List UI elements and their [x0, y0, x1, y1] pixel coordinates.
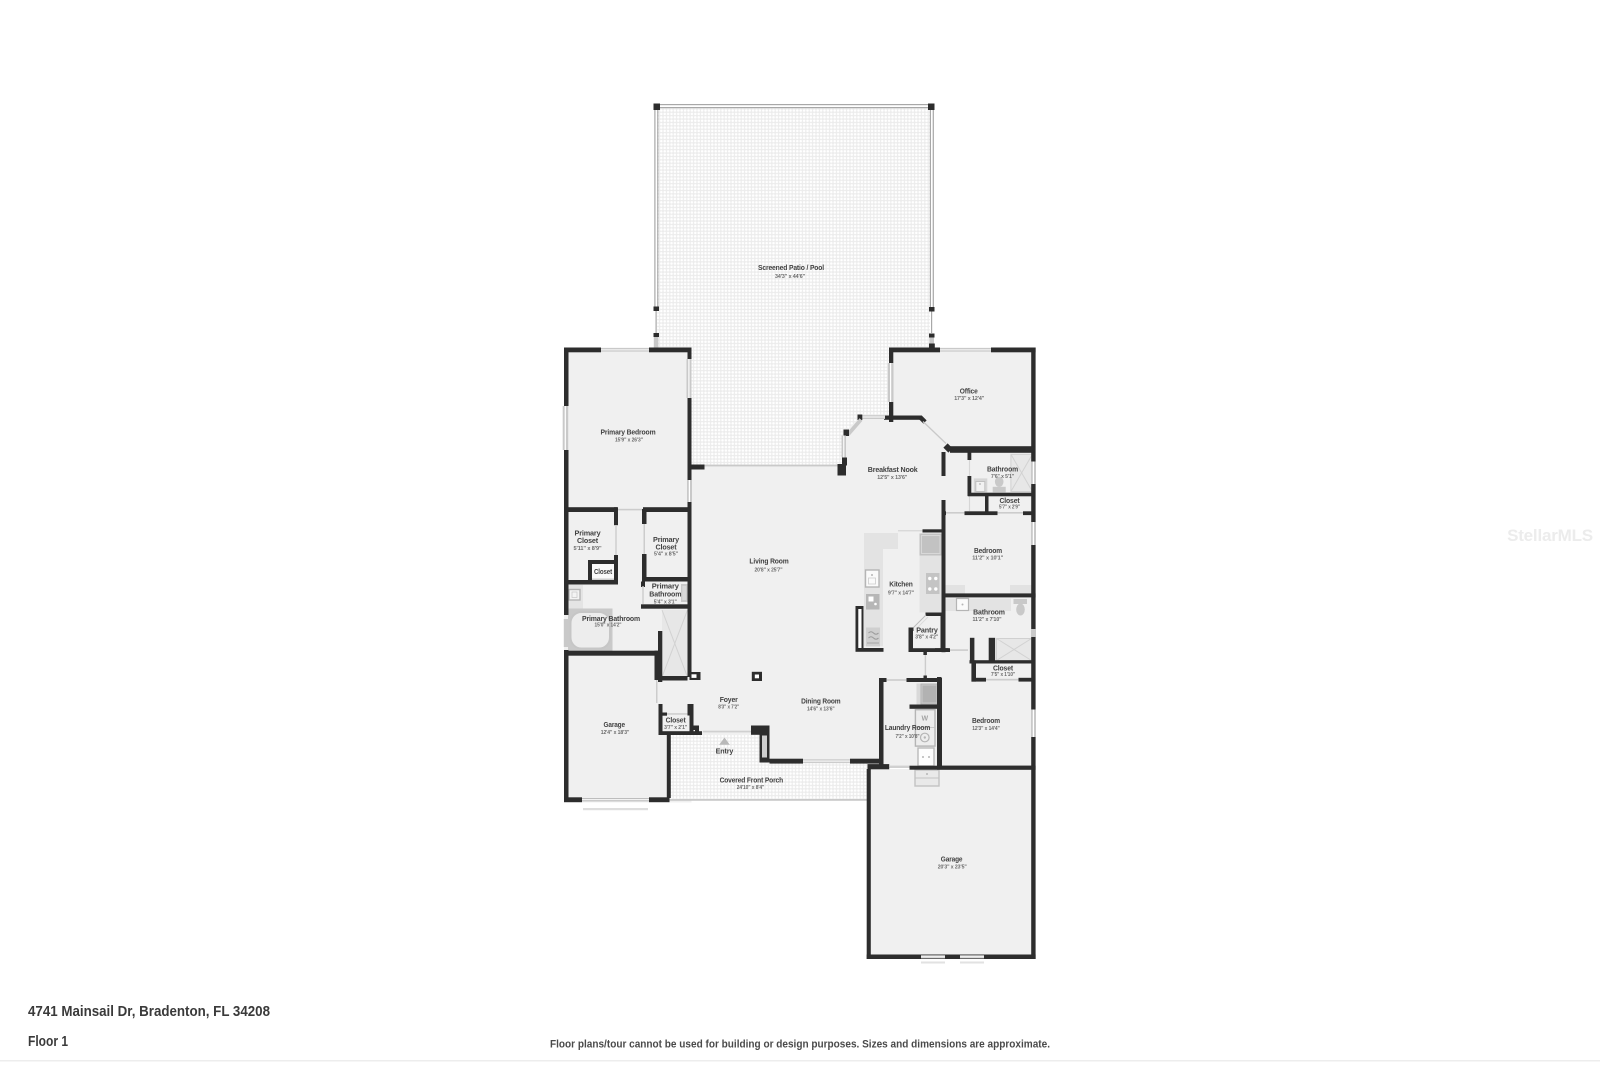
svg-text:Closet: Closet: [656, 543, 678, 552]
svg-text:5'7" x 2'9": 5'7" x 2'9": [999, 505, 1020, 511]
svg-text:3'8" x 4'2": 3'8" x 4'2": [915, 635, 938, 641]
svg-text:Primary Bathroom: Primary Bathroom: [582, 614, 640, 623]
svg-text:15'9" x 26'3": 15'9" x 26'3": [615, 437, 643, 443]
svg-text:Garage: Garage: [604, 720, 626, 729]
svg-text:Laundry Room: Laundry Room: [885, 723, 930, 732]
svg-text:Foyer: Foyer: [720, 695, 738, 704]
svg-text:Living Room: Living Room: [749, 556, 788, 565]
svg-text:11'2" x 10'1": 11'2" x 10'1": [972, 556, 1003, 562]
svg-text:Floor plans/tour cannot be use: Floor plans/tour cannot be used for buil…: [550, 1039, 1050, 1051]
svg-text:7'6" x 5'1": 7'6" x 5'1": [991, 474, 1014, 480]
svg-text:Breakfast Nook: Breakfast Nook: [868, 465, 918, 474]
svg-text:12'3" x 14'4": 12'3" x 14'4": [972, 726, 1000, 732]
svg-text:7'2" x 10'8": 7'2" x 10'8": [896, 734, 920, 740]
svg-text:12'5" x 13'6": 12'5" x 13'6": [877, 475, 907, 481]
svg-text:Bathroom: Bathroom: [973, 608, 1005, 617]
svg-text:W: W: [921, 716, 928, 723]
svg-text:StellarMLS: StellarMLS: [1507, 526, 1593, 545]
svg-text:20'3" x 23'5": 20'3" x 23'5": [938, 864, 967, 870]
svg-text:5'4" x 3'1": 5'4" x 3'1": [654, 599, 677, 605]
svg-text:Closet: Closet: [594, 567, 613, 576]
svg-text:Entry: Entry: [716, 747, 734, 756]
svg-text:12'4" x 18'3": 12'4" x 18'3": [601, 730, 630, 736]
svg-text:9'7" x 14'7": 9'7" x 14'7": [888, 591, 914, 597]
svg-text:Bedroom: Bedroom: [974, 546, 1002, 555]
svg-text:Floor 1: Floor 1: [28, 1034, 68, 1050]
svg-text:Closet: Closet: [993, 663, 1014, 672]
svg-text:Closet: Closet: [666, 716, 687, 725]
svg-text:Garage: Garage: [941, 855, 963, 864]
svg-text:5'11" x 8'9": 5'11" x 8'9": [574, 546, 602, 552]
svg-text:Kitchen: Kitchen: [889, 580, 912, 589]
svg-text:20'8" x 25'7": 20'8" x 25'7": [755, 568, 783, 574]
svg-text:24'10" x 8'4": 24'10" x 8'4": [737, 785, 765, 791]
svg-text:Bathroom: Bathroom: [987, 464, 1018, 473]
svg-text:Bathroom: Bathroom: [649, 590, 681, 599]
svg-text:4741 Mainsail Dr, Bradenton, F: 4741 Mainsail Dr, Bradenton, FL 34208: [28, 1003, 270, 1020]
svg-text:Covered Front Porch: Covered Front Porch: [720, 776, 783, 785]
svg-text:Screened Patio / Pool: Screened Patio / Pool: [758, 263, 824, 272]
svg-text:34'3" x 44'6": 34'3" x 44'6": [775, 274, 805, 280]
svg-text:8'3" x 7'2": 8'3" x 7'2": [718, 705, 739, 711]
svg-text:Pantry: Pantry: [916, 626, 938, 635]
svg-text:15'0" x 14'2": 15'0" x 14'2": [595, 623, 622, 629]
svg-text:Closet: Closet: [577, 536, 599, 545]
svg-text:Office: Office: [960, 387, 978, 396]
svg-text:7'5" x 1'10": 7'5" x 1'10": [991, 672, 1015, 678]
svg-text:Primary Bedroom: Primary Bedroom: [601, 428, 656, 437]
svg-text:Dining Room: Dining Room: [801, 696, 840, 705]
svg-text:11'2" x 7'10": 11'2" x 7'10": [973, 617, 1002, 623]
svg-text:17'3" x 12'4": 17'3" x 12'4": [954, 396, 984, 402]
svg-text:14'6" x 13'6": 14'6" x 13'6": [807, 706, 835, 712]
svg-text:5'4" x 8'5": 5'4" x 8'5": [654, 552, 678, 558]
svg-text:3'7" x 2'1": 3'7" x 2'1": [664, 725, 687, 731]
svg-text:Bedroom: Bedroom: [972, 716, 1000, 725]
